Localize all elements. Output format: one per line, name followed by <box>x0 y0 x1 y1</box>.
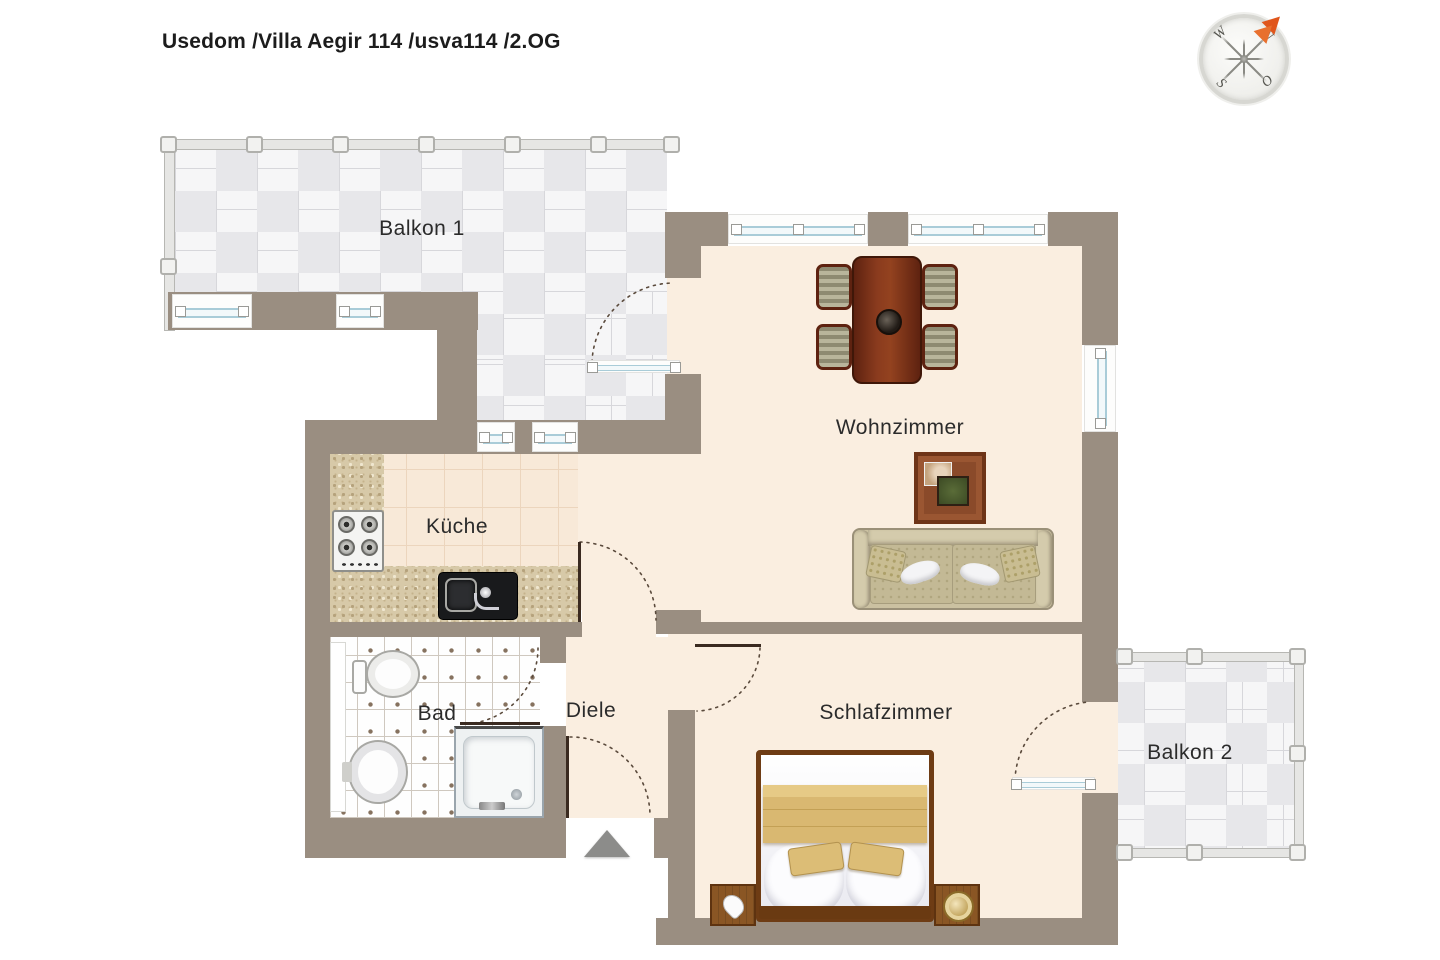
railing-post <box>663 136 680 153</box>
toilet-tank <box>352 660 367 694</box>
bedroom-door-leaf <box>695 644 761 647</box>
railing-post <box>1289 648 1306 665</box>
dining-chair <box>816 264 852 310</box>
stove <box>332 510 384 572</box>
window-mullion <box>238 306 249 317</box>
window <box>908 214 1048 244</box>
door-glazing <box>1018 782 1089 788</box>
railing-post <box>1116 844 1133 861</box>
railing-post <box>160 136 177 153</box>
shower <box>454 726 544 818</box>
door-frame <box>1011 779 1022 790</box>
wall <box>668 710 695 945</box>
stove-burner <box>338 516 355 533</box>
bed-headboard <box>759 906 931 919</box>
floor-plan: Usedom /Villa Aegir 114 /usva114 /2.OG <box>0 0 1440 960</box>
wall <box>1082 622 1118 702</box>
bed-blanket <box>763 785 927 843</box>
window-mullion <box>973 224 984 235</box>
balcony2-door <box>1012 777 1095 790</box>
wall <box>665 212 728 246</box>
window-mullion <box>854 224 865 235</box>
wall <box>330 622 582 637</box>
compass-center <box>1240 55 1248 63</box>
bathroom-wall-recess <box>330 642 346 812</box>
double-bed <box>756 750 934 922</box>
wall <box>305 420 330 858</box>
dining-chair <box>922 324 958 370</box>
table-centerpiece <box>876 309 902 335</box>
wall <box>868 212 908 246</box>
wall <box>1082 246 1118 345</box>
balcony2-railing-top <box>1118 652 1304 662</box>
window-mullion <box>1095 418 1106 429</box>
window-mullion <box>534 432 545 443</box>
railing-post <box>418 136 435 153</box>
entrance-door-leaf <box>566 736 569 818</box>
room-label-diele: Diele <box>566 699 616 723</box>
washbasin <box>348 740 408 804</box>
window <box>728 214 868 244</box>
stove-knobs <box>340 562 378 567</box>
wall <box>437 330 477 422</box>
window <box>1084 345 1116 432</box>
window-mullion <box>911 224 922 235</box>
toilet <box>366 650 420 698</box>
nightstand-left <box>710 884 756 926</box>
wall <box>1082 432 1118 622</box>
entrance-door-swing <box>560 730 658 824</box>
kitchen-door-swing <box>572 535 667 630</box>
dining-chair <box>922 264 958 310</box>
compass-east: O <box>1259 73 1277 91</box>
compass-south: S <box>1212 76 1228 92</box>
railing-post <box>1186 648 1203 665</box>
balcony2-railing-bottom <box>1118 848 1304 858</box>
railing-post <box>590 136 607 153</box>
bathroom-door-swing <box>455 640 550 735</box>
room-label-kueche: Küche <box>426 515 488 539</box>
picture-inner <box>937 476 969 506</box>
bedside-lamp <box>719 891 749 921</box>
railing-post <box>332 136 349 153</box>
bedside-clock <box>943 891 974 922</box>
stove-burner <box>361 516 378 533</box>
door-glazing <box>594 365 674 371</box>
window-mullion <box>502 432 513 443</box>
railing-post <box>246 136 263 153</box>
window-glazing <box>178 308 246 318</box>
railing-post <box>504 136 521 153</box>
window-mullion <box>1095 348 1106 359</box>
door-frame <box>587 362 598 373</box>
door-frame <box>670 362 681 373</box>
balcony1-door <box>588 360 680 373</box>
shower-drain <box>511 789 522 800</box>
room-label-balkon1: Balkon 1 <box>379 217 465 241</box>
basin-faucet <box>342 762 352 782</box>
room-label-bad: Bad <box>418 702 457 726</box>
nightstand-right <box>934 884 980 926</box>
entrance-arrow <box>584 830 630 857</box>
door-frame <box>1085 779 1096 790</box>
window <box>532 422 578 452</box>
dining-table <box>852 256 922 384</box>
bedroom-door-swing <box>690 640 770 720</box>
page-title: Usedom /Villa Aegir 114 /usva114 /2.OG <box>162 30 561 54</box>
stove-burner <box>361 539 378 556</box>
window-mullion <box>1034 224 1045 235</box>
window-mullion <box>479 432 490 443</box>
balcony2-door-swing <box>1005 695 1105 790</box>
wall <box>665 374 701 422</box>
room-label-wohnzimmer: Wohnzimmer <box>836 416 964 440</box>
window <box>477 422 515 452</box>
railing-post <box>1289 745 1306 762</box>
window-mullion <box>793 224 804 235</box>
wall <box>305 818 566 858</box>
bathroom-door-leaf <box>460 722 540 725</box>
compass-rose: W N O S <box>1199 14 1289 104</box>
dining-chair <box>816 324 852 370</box>
window <box>336 294 384 328</box>
window-mullion <box>370 306 381 317</box>
window-mullion <box>175 306 186 317</box>
window <box>172 294 252 328</box>
shower-tray <box>463 736 535 809</box>
sink-spout <box>474 593 499 610</box>
window-mullion <box>731 224 742 235</box>
window-mullion <box>339 306 350 317</box>
railing-post <box>1186 844 1203 861</box>
kitchen-door-leaf <box>578 542 581 622</box>
wall <box>1082 793 1118 945</box>
room-label-balkon2: Balkon 2 <box>1147 741 1233 765</box>
sink-basin <box>445 578 477 612</box>
shower-fixture <box>479 802 505 810</box>
kitchen-sink <box>438 572 518 620</box>
railing-post <box>160 258 177 275</box>
railing-post <box>1116 648 1133 665</box>
sofa <box>852 528 1054 610</box>
window-glazing <box>1097 351 1107 426</box>
wall <box>1048 212 1118 246</box>
railing-post <box>1289 844 1306 861</box>
room-label-schlafzimmer: Schlafzimmer <box>819 701 952 725</box>
wall-picture <box>914 452 986 524</box>
stove-burner <box>338 539 355 556</box>
window-mullion <box>565 432 576 443</box>
